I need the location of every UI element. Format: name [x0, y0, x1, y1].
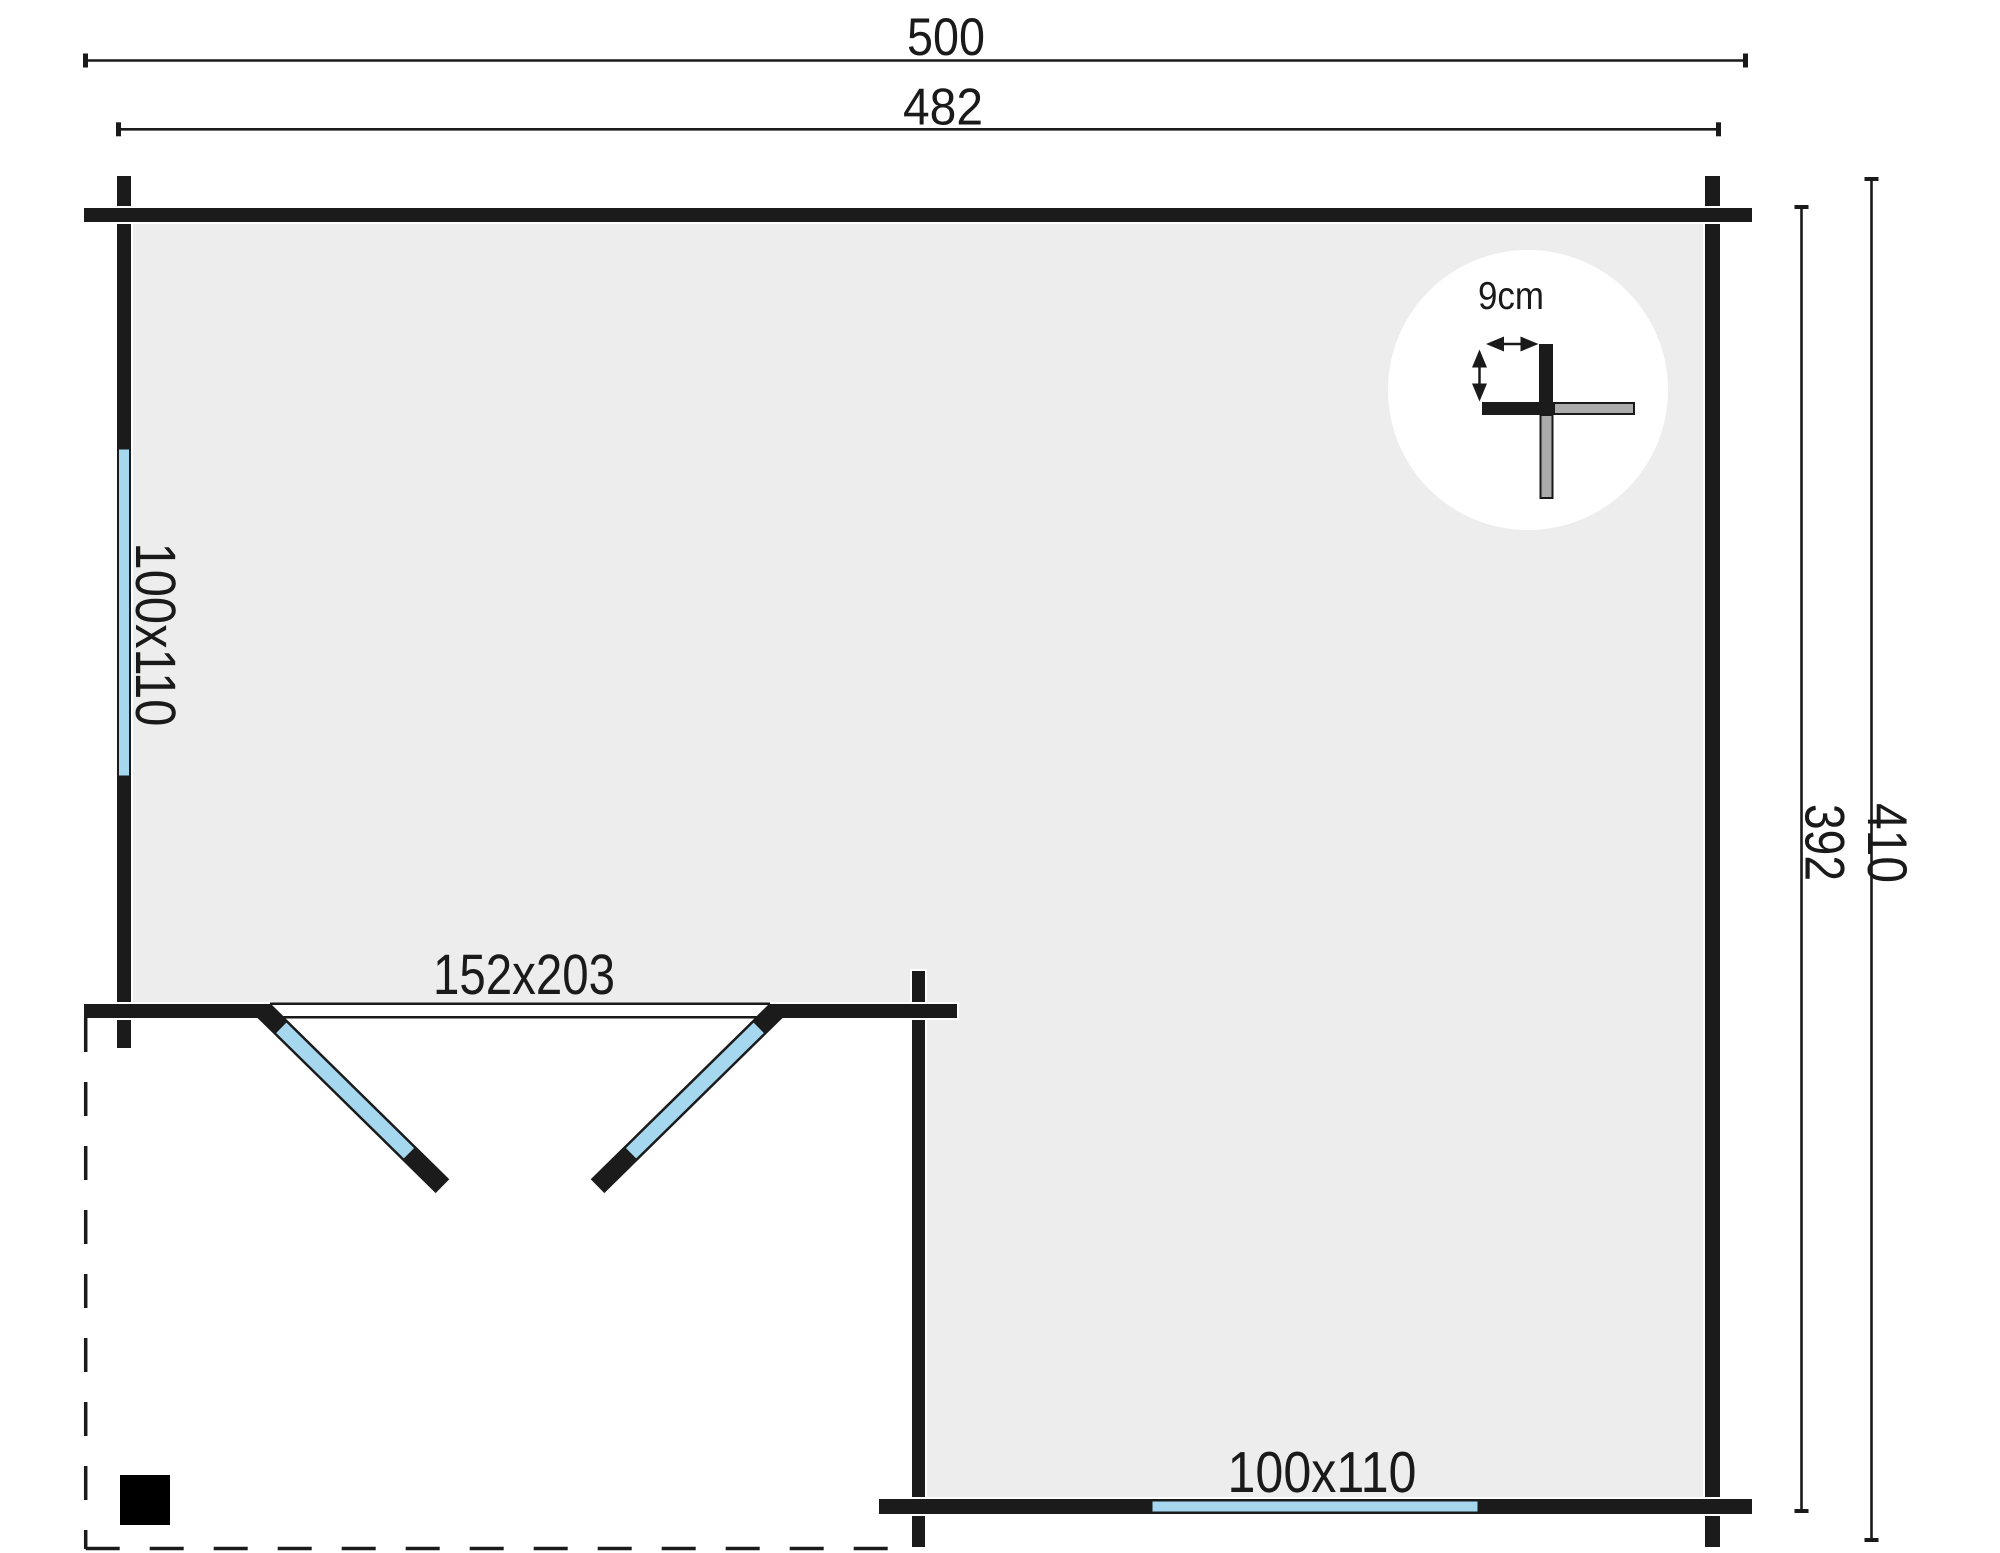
- svg-text:500: 500: [907, 8, 985, 67]
- svg-text:100x110: 100x110: [123, 543, 187, 727]
- svg-text:392: 392: [1794, 804, 1857, 881]
- svg-text:100x110: 100x110: [1228, 1440, 1417, 1505]
- svg-text:482: 482: [903, 79, 983, 137]
- svg-text:152x203: 152x203: [433, 943, 615, 1007]
- svg-text:410: 410: [1856, 803, 1919, 883]
- svg-text:9cm: 9cm: [1478, 275, 1544, 318]
